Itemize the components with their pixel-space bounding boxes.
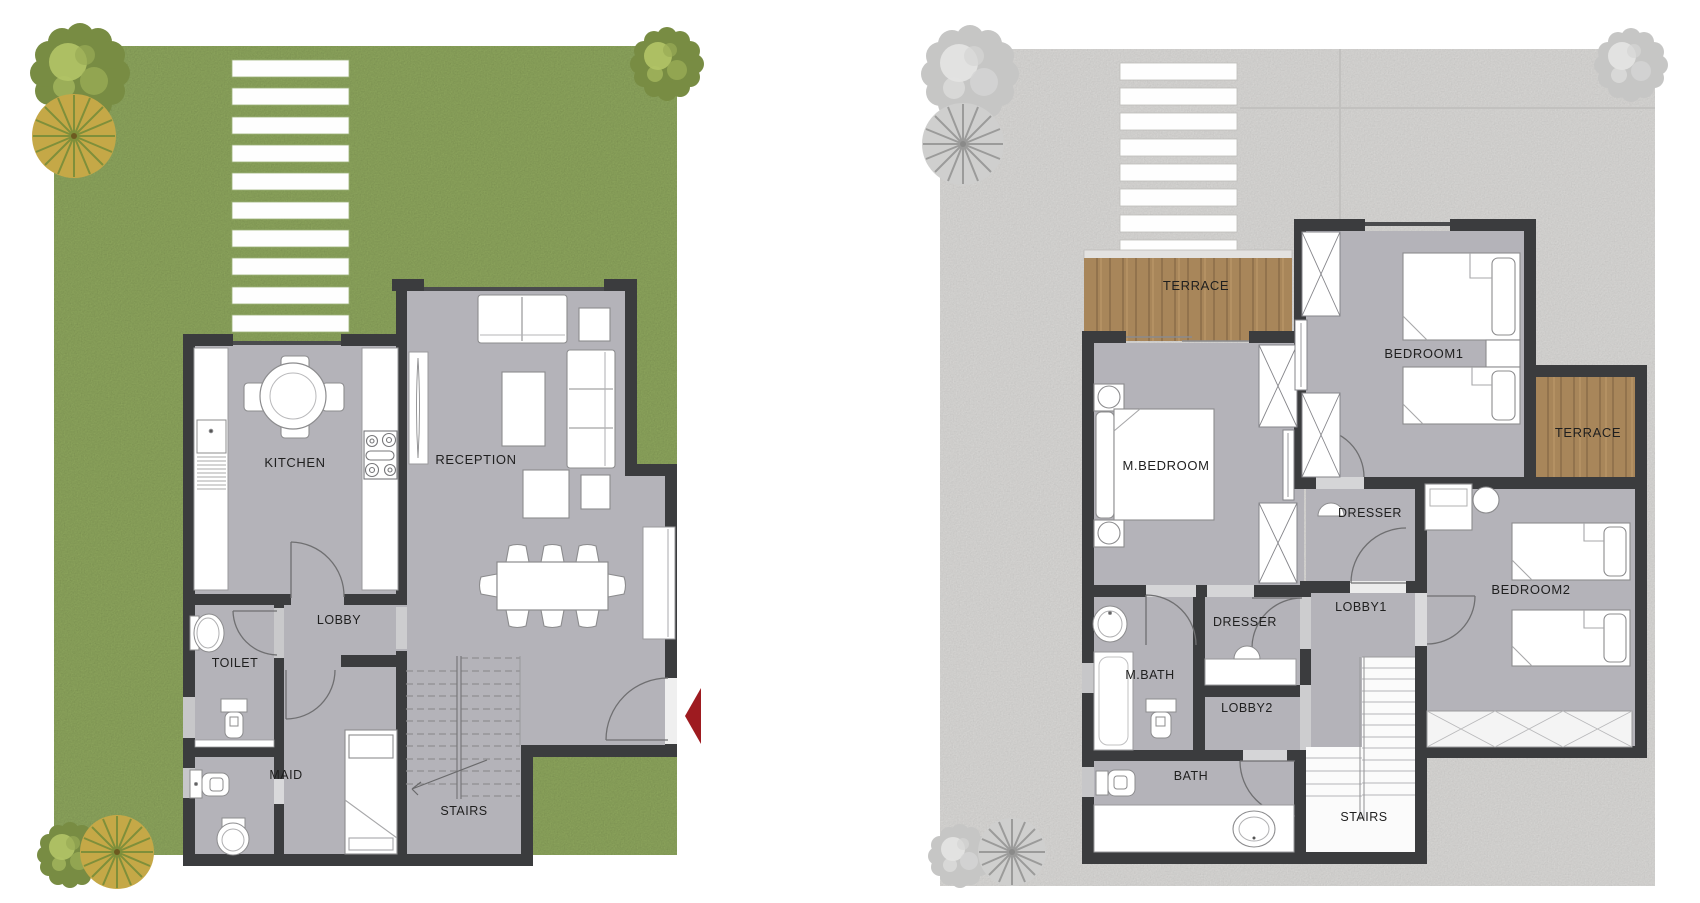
svg-text:M.BATH: M.BATH <box>1125 668 1174 682</box>
svg-text:BEDROOM1: BEDROOM1 <box>1384 346 1463 361</box>
svg-text:TERRACE: TERRACE <box>1163 278 1229 293</box>
svg-text:TOILET: TOILET <box>212 656 259 670</box>
svg-text:LOBBY: LOBBY <box>317 613 361 627</box>
svg-text:LOBBY1: LOBBY1 <box>1335 600 1387 614</box>
svg-text:TERRACE: TERRACE <box>1555 425 1621 440</box>
svg-text:DRESSER: DRESSER <box>1213 615 1277 629</box>
svg-text:DRESSER: DRESSER <box>1338 506 1402 520</box>
svg-text:BEDROOM2: BEDROOM2 <box>1491 582 1570 597</box>
svg-text:STAIRS: STAIRS <box>440 804 487 818</box>
svg-text:MAID: MAID <box>269 768 302 782</box>
svg-text:STAIRS: STAIRS <box>1340 810 1387 824</box>
svg-text:BATH: BATH <box>1174 769 1208 783</box>
svg-text:LOBBY2: LOBBY2 <box>1221 701 1273 715</box>
svg-text:KITCHEN: KITCHEN <box>264 455 325 470</box>
svg-text:M.BEDROOM: M.BEDROOM <box>1122 458 1209 473</box>
svg-text:RECEPTION: RECEPTION <box>435 452 516 467</box>
